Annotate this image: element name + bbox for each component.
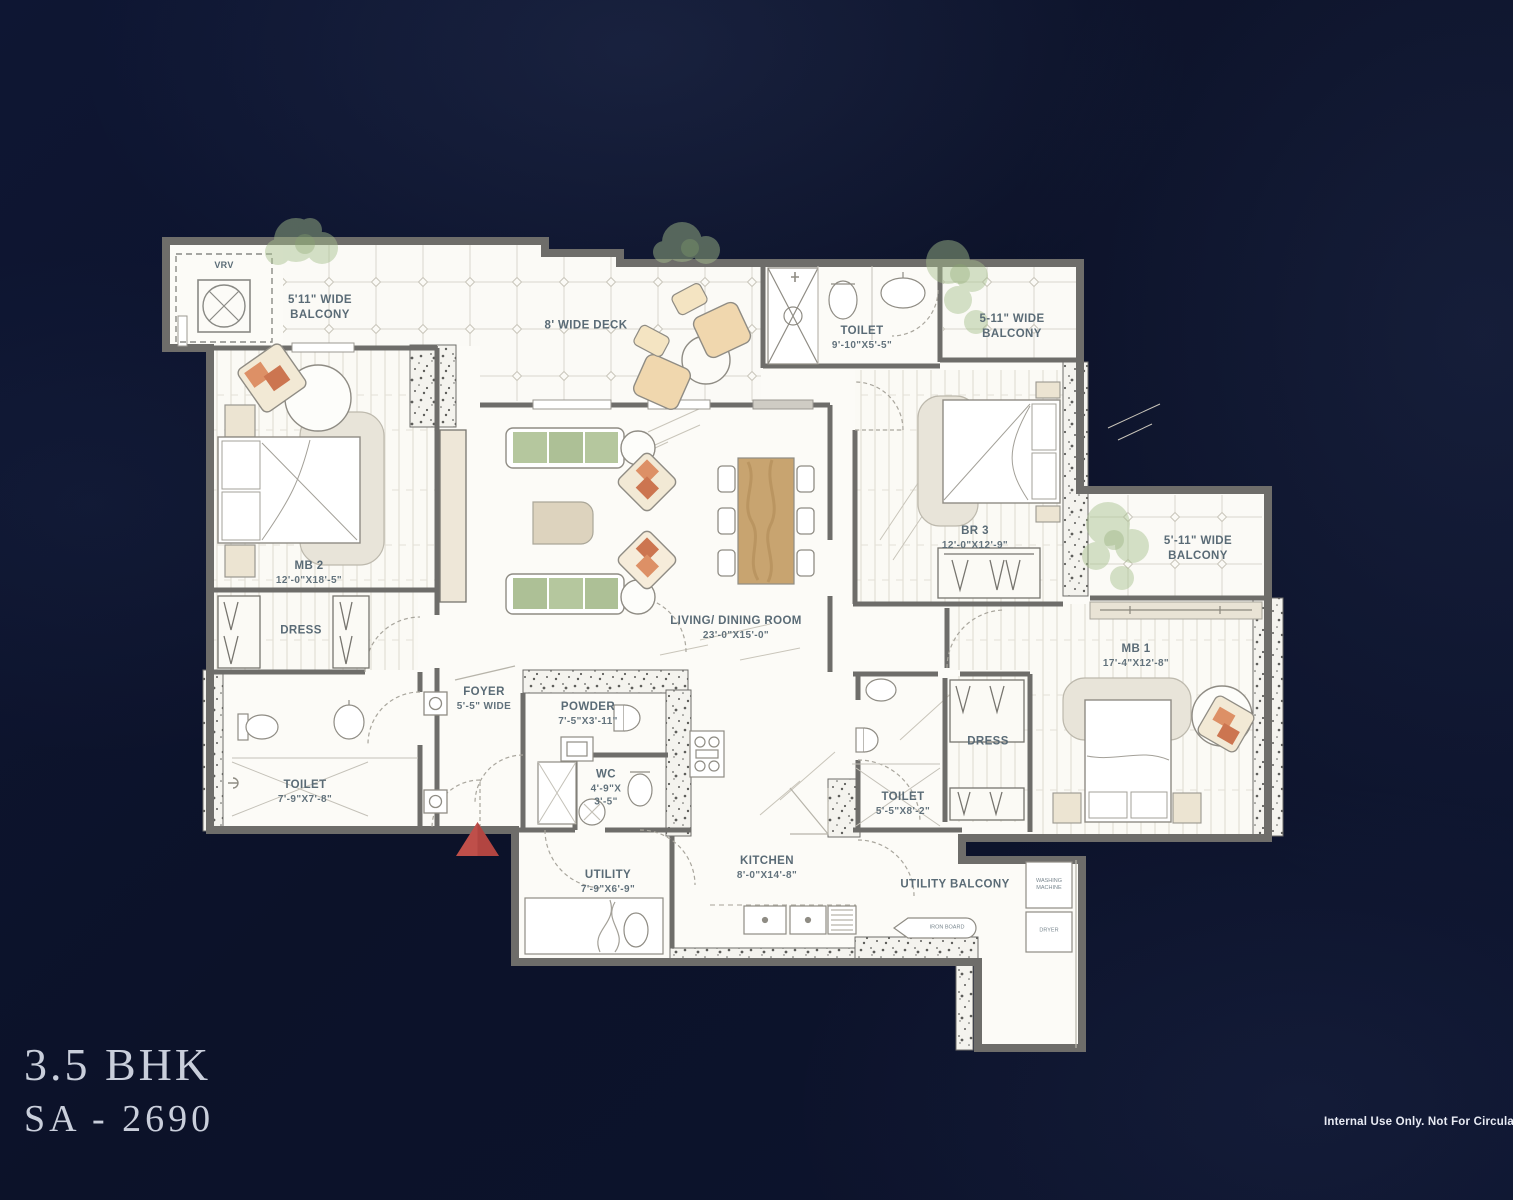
unit-title: 3.5 BHK SA - 2690 xyxy=(24,1038,214,1141)
confidentiality-note: Internal Use Only. Not For Circulation xyxy=(1324,1116,1513,1128)
floorplan-page: VRV 5'11" WIDE BALCONY 8' WIDE DECK TOIL… xyxy=(0,0,1513,1200)
floorplan-drawing xyxy=(0,0,1513,1200)
unit-type: 3.5 BHK xyxy=(24,1038,214,1091)
unit-area: SA - 2690 xyxy=(24,1097,214,1141)
